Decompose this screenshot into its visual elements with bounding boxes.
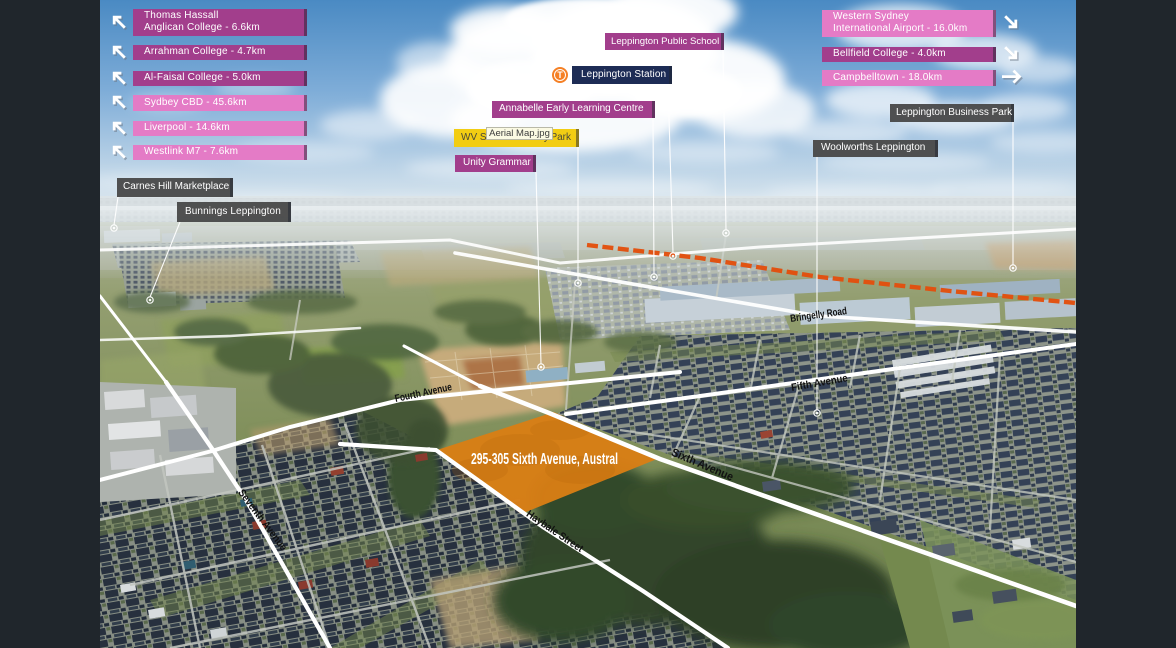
svg-text:295-305 Sixth Avenue, Austral: 295-305 Sixth Avenue, Austral — [471, 451, 618, 468]
